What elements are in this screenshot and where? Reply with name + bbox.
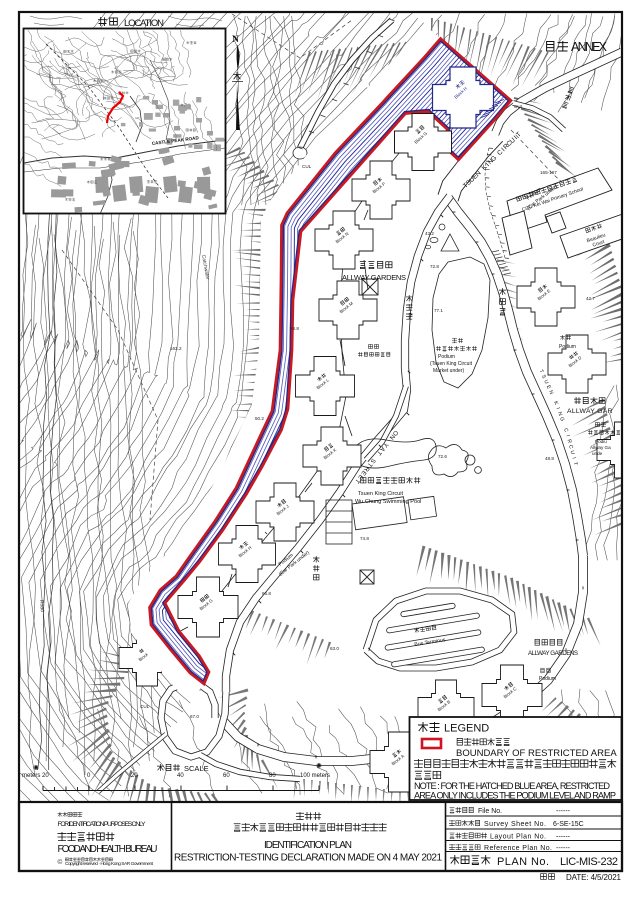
svg-text:✺: ✺ xyxy=(316,762,322,770)
svg-text:74.8: 74.8 xyxy=(360,536,369,541)
svg-text:meters 20: meters 20 xyxy=(22,773,49,779)
svg-text:50.2: 50.2 xyxy=(255,416,264,421)
svg-text:FOR IDENTIFICATION PURPOSES ON: FOR IDENTIFICATION PURPOSES ONLY xyxy=(58,821,146,828)
svg-text:RESTRICTION-TESTING DECLARATIO: RESTRICTION-TESTING DECLARATION MADE ON … xyxy=(174,853,442,864)
svg-text:Podiu: Podiu xyxy=(595,439,607,444)
svg-text:------: ------ xyxy=(556,834,571,841)
svg-text:IDENTIFICATION PLAN: IDENTIFICATION PLAN xyxy=(264,840,352,851)
svg-text:67.0: 67.0 xyxy=(190,714,199,719)
svg-text:72.8: 72.8 xyxy=(430,264,439,269)
svg-text:Podium: Podium xyxy=(559,344,576,350)
svg-text:AREA ONLY INCLUDES THE PODIUM: AREA ONLY INCLUDES THE PODIUM LEVEL AND … xyxy=(414,791,616,801)
svg-text:43.2: 43.2 xyxy=(425,231,434,236)
svg-text:72.6: 72.6 xyxy=(438,454,447,459)
svg-text:N: N xyxy=(232,35,239,45)
svg-text:LOCATION: LOCATION xyxy=(124,18,164,29)
svg-text:Reference Plan No.: Reference Plan No. xyxy=(484,845,552,852)
svg-text:66.8: 66.8 xyxy=(262,591,271,596)
svg-text:unde: unde xyxy=(592,451,603,456)
svg-text:File No.: File No. xyxy=(478,808,502,815)
svg-text:LEGEND: LEGEND xyxy=(444,723,489,735)
svg-text:Podium: Podium xyxy=(539,676,556,682)
svg-text:ANNEX: ANNEX xyxy=(571,40,608,54)
svg-text:100 meters: 100 meters xyxy=(300,773,330,779)
svg-text:Copyright reserved · Hong Kong: Copyright reserved · Hong Kong SAR Gover… xyxy=(65,861,154,867)
svg-text:40: 40 xyxy=(177,773,184,779)
svg-text:60: 60 xyxy=(223,773,230,779)
svg-text:88.8: 88.8 xyxy=(290,326,299,331)
svg-text:PLAN No.: PLAN No. xyxy=(497,856,549,868)
svg-text:77.1: 77.1 xyxy=(434,308,443,313)
svg-text:Survey Sheet No.: Survey Sheet No. xyxy=(484,821,546,828)
svg-text:ALLWAY GARDENS: ALLWAY GARDENS xyxy=(342,273,406,282)
svg-text:Tsuen King Circuit: Tsuen King Circuit xyxy=(358,491,404,497)
svg-text:Road: Road xyxy=(38,600,45,613)
svg-text:CUL: CUL xyxy=(302,164,312,169)
svg-text:©: © xyxy=(58,858,63,866)
svg-text:LIC-MIS-232: LIC-MIS-232 xyxy=(560,856,618,868)
svg-text:SCALE: SCALE xyxy=(184,764,209,773)
svg-text:63.0: 63.0 xyxy=(330,646,339,651)
svg-text:Allway Ga: Allway Ga xyxy=(590,445,611,450)
svg-text:48.8: 48.8 xyxy=(545,456,554,461)
svg-text:CUL: CUL xyxy=(514,104,524,109)
svg-text:Wu Chung Swimming Pool: Wu Chung Swimming Pool xyxy=(355,499,421,505)
svg-text:NOTE : FOR THE HATCHED BLUE AR: NOTE : FOR THE HATCHED BLUE AREA, RESTRI… xyxy=(414,781,610,791)
svg-text:(Tsuen King Circuit: (Tsuen King Circuit xyxy=(430,361,473,367)
svg-text:Podium: Podium xyxy=(438,354,455,360)
svg-text:ALLWAY GAR: ALLWAY GAR xyxy=(567,408,613,415)
svg-text:------: ------ xyxy=(556,845,571,852)
svg-text:Layout Plan No.: Layout Plan No. xyxy=(490,834,546,841)
svg-text:6-SE-15C: 6-SE-15C xyxy=(553,821,584,828)
svg-text:------: ------ xyxy=(556,808,571,815)
svg-text:DATE: 4/5/2021: DATE: 4/5/2021 xyxy=(566,873,622,882)
svg-text:CUL: CUL xyxy=(140,704,150,709)
svg-text:42.7: 42.7 xyxy=(586,296,595,301)
svg-text:ALLWAY GARDENS: ALLWAY GARDENS xyxy=(528,650,578,657)
svg-text:Market under): Market under) xyxy=(433,368,464,374)
svg-text:163.2: 163.2 xyxy=(170,346,182,351)
svg-text:165-167: 165-167 xyxy=(540,170,557,175)
svg-text:✺: ✺ xyxy=(33,764,39,772)
svg-text:BOUNDARY OF RESTRICTED AREA: BOUNDARY OF RESTRICTED AREA xyxy=(456,748,617,759)
svg-text:FOOD AND HEALTH BUREAU: FOOD AND HEALTH BUREAU xyxy=(58,844,158,855)
svg-text:20: 20 xyxy=(131,773,138,779)
svg-text:80: 80 xyxy=(269,773,276,779)
